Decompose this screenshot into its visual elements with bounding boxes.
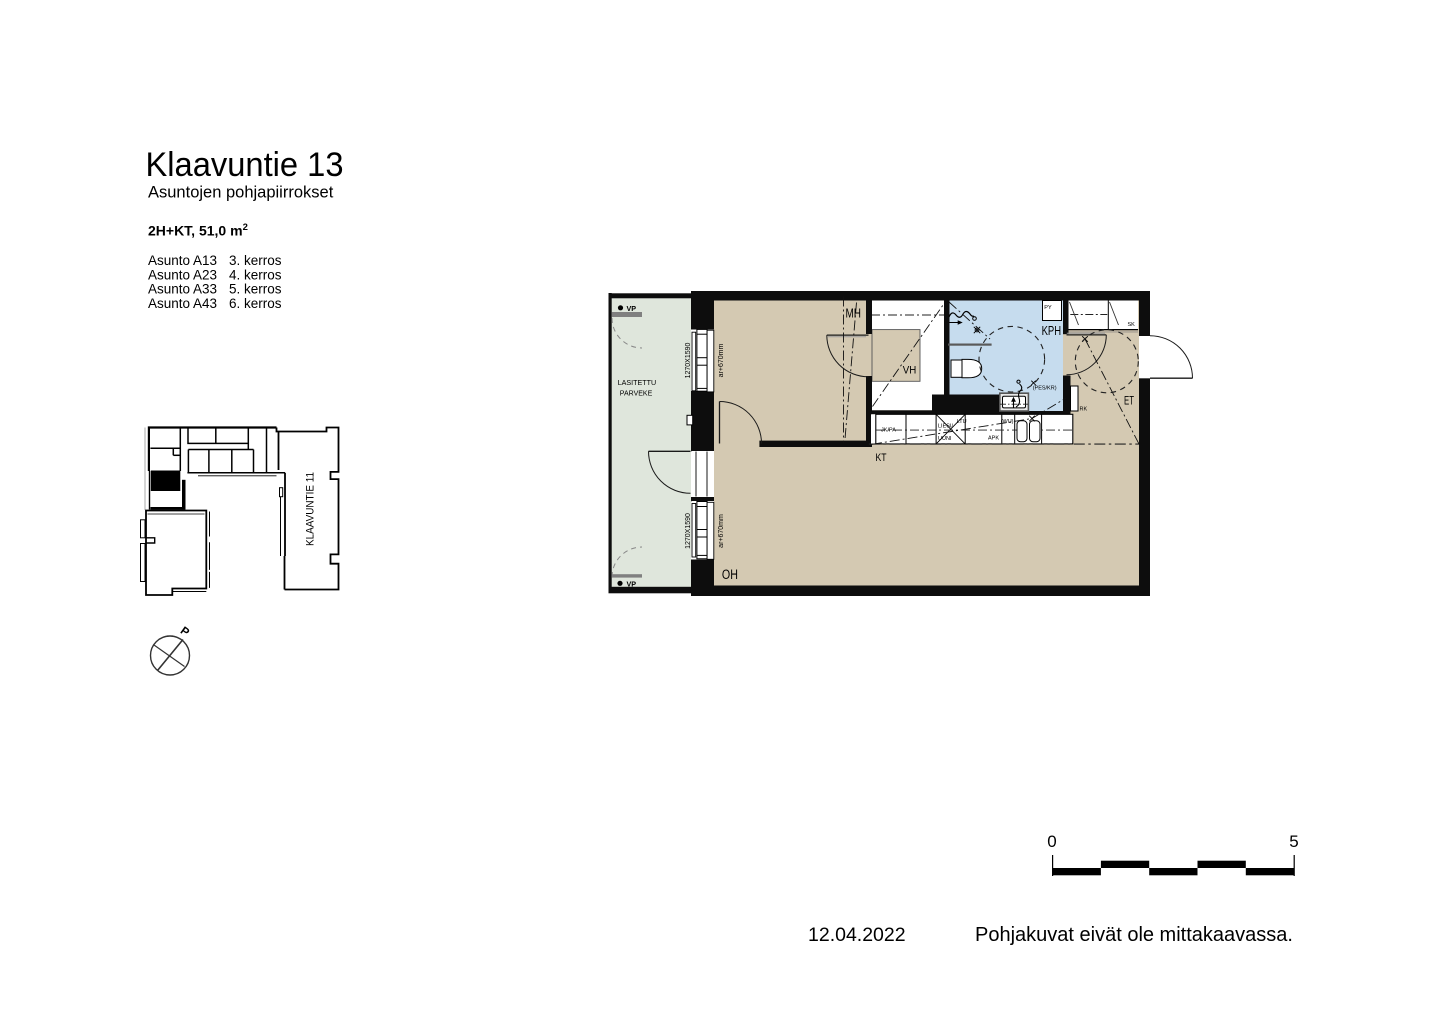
svg-text:12.04.2022: 12.04.2022 <box>808 924 906 946</box>
svg-text:(WU): (WU) <box>1001 419 1014 425</box>
svg-text:1270X1590: 1270X1590 <box>685 342 692 378</box>
svg-text:5. kerros: 5. kerros <box>229 282 282 297</box>
svg-text:RK: RK <box>1080 407 1088 413</box>
svg-text:6. kerros: 6. kerros <box>229 296 282 311</box>
svg-text:PY: PY <box>1044 305 1052 311</box>
svg-text:VH: VH <box>903 365 917 377</box>
svg-text:KPH: KPH <box>1042 324 1062 338</box>
svg-text:LIESI/: LIESI/ <box>938 424 953 430</box>
svg-text:Asunto A23: Asunto A23 <box>148 267 217 282</box>
svg-text:LASITETTU: LASITETTU <box>618 378 657 387</box>
svg-text:OH: OH <box>722 567 738 582</box>
svg-text:APK: APK <box>988 436 999 442</box>
svg-text:5: 5 <box>1289 832 1298 851</box>
svg-text:VP: VP <box>627 580 637 589</box>
svg-text:LTU: LTU <box>957 419 967 425</box>
svg-text:Asunto A33: Asunto A33 <box>148 282 217 297</box>
svg-text:P: P <box>178 625 192 639</box>
svg-text:KT: KT <box>876 452 887 464</box>
svg-text:Asunto A13: Asunto A13 <box>148 253 217 268</box>
svg-text:1270X1590: 1270X1590 <box>685 513 692 549</box>
svg-text:Asuntojen pohjapiirrokset: Asuntojen pohjapiirrokset <box>148 184 334 202</box>
svg-text:Asunto A43: Asunto A43 <box>148 296 217 311</box>
svg-text:SK: SK <box>1128 322 1136 328</box>
svg-text:0: 0 <box>1047 832 1056 851</box>
svg-text:Pohjakuvat eivät ole mittakaav: Pohjakuvat eivät ole mittakaavassa. <box>975 924 1293 946</box>
svg-text:(PES/KR): (PES/KR) <box>1033 386 1057 392</box>
svg-text:ar+670mm: ar+670mm <box>718 344 725 378</box>
svg-text:3. kerros: 3. kerros <box>229 253 282 268</box>
svg-text:ET: ET <box>1124 396 1134 408</box>
svg-text:4. kerros: 4. kerros <box>229 267 282 282</box>
svg-text:VP: VP <box>627 304 637 313</box>
svg-text:UUNI: UUNI <box>938 436 952 442</box>
svg-text:MH: MH <box>846 306 862 321</box>
svg-text:2H+KT, 51,0 m2: 2H+KT, 51,0 m2 <box>148 222 248 239</box>
svg-text:JK/PA: JK/PA <box>881 428 896 434</box>
svg-text:KLAAVUNTIE 11: KLAAVUNTIE 11 <box>305 472 317 546</box>
svg-text:Klaavuntie 13: Klaavuntie 13 <box>146 146 344 184</box>
svg-text:ar+670mm: ar+670mm <box>718 514 725 548</box>
svg-text:PARVEKE: PARVEKE <box>620 389 653 398</box>
